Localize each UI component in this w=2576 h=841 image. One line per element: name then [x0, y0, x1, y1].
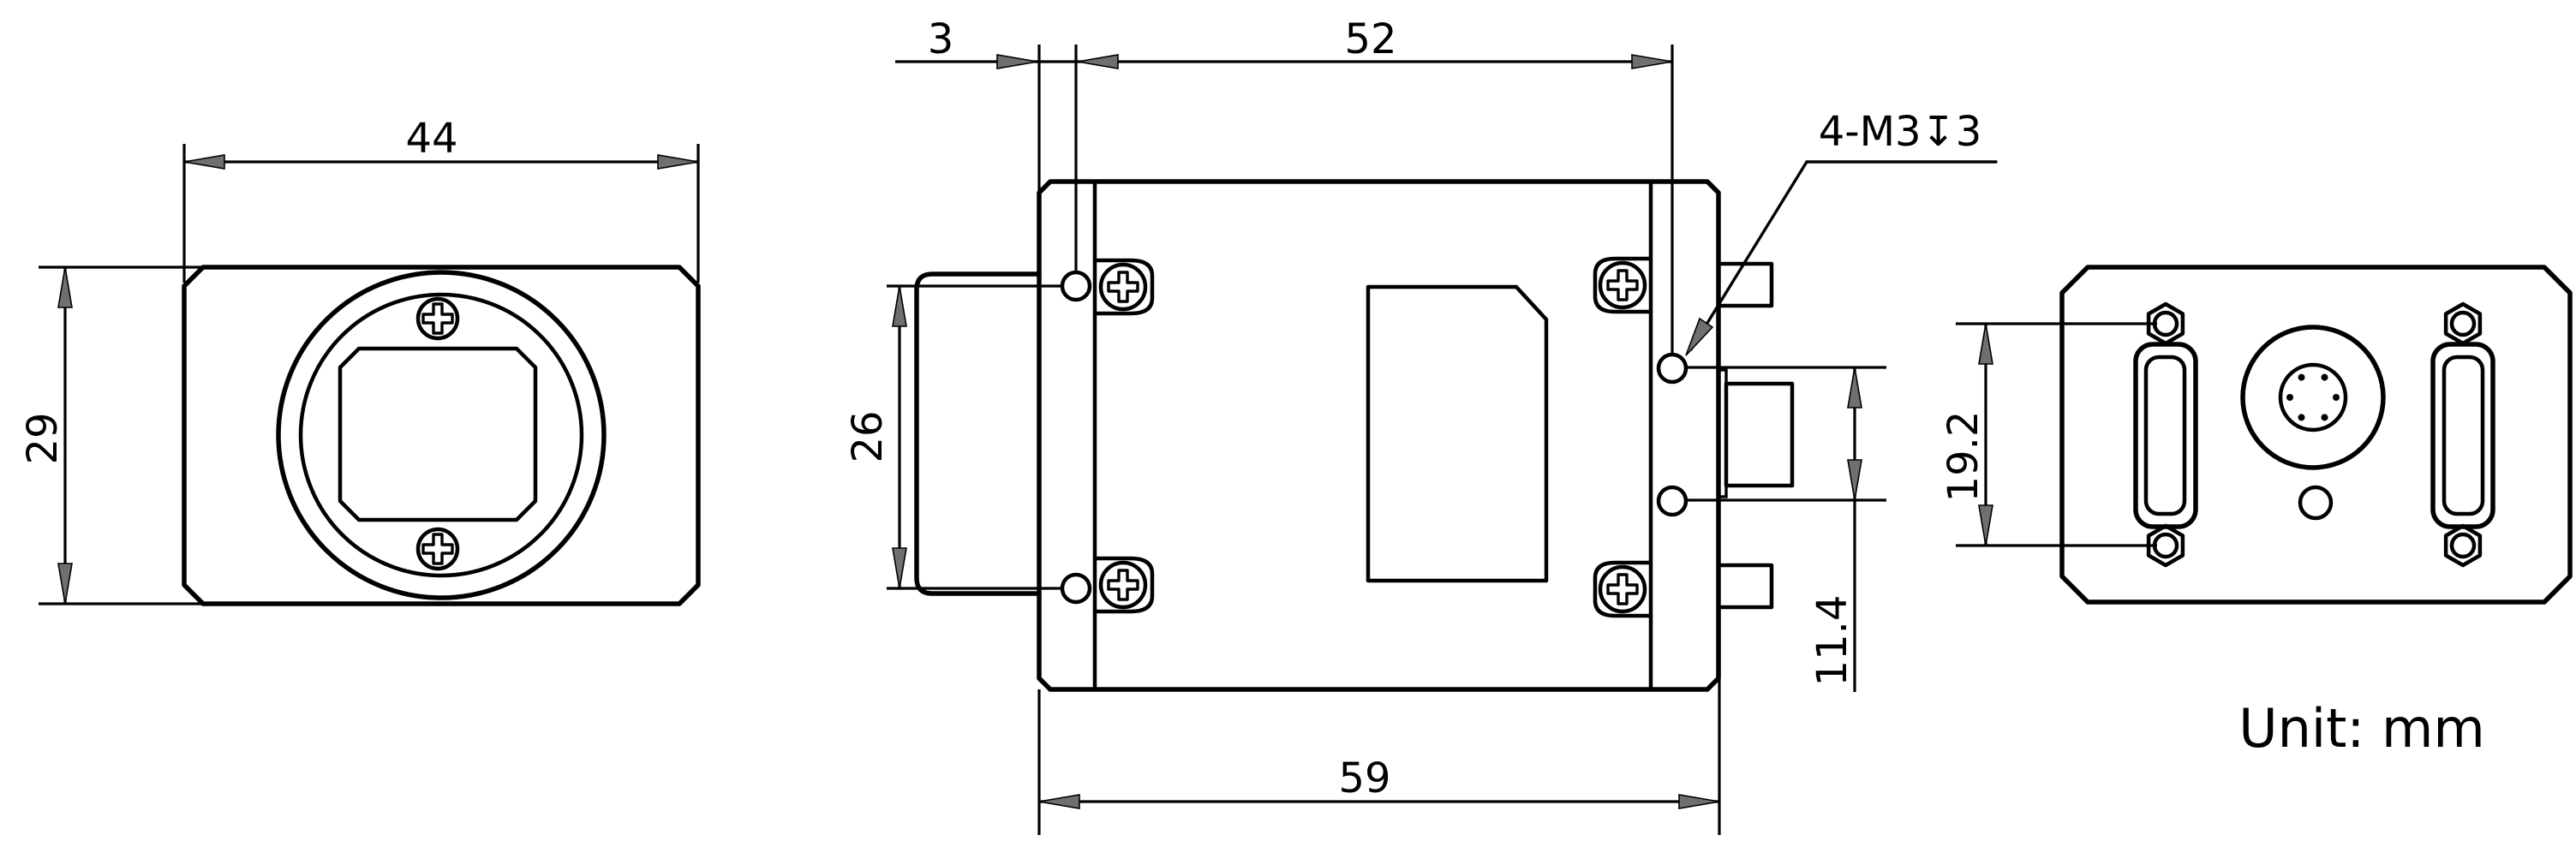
sensor-window: [340, 349, 535, 520]
callout-text-4-m3: 4-M3↧3: [1819, 108, 1982, 156]
lens-barrel: [917, 274, 1039, 593]
top-screw-rear-bottom-icon: [1595, 563, 1651, 616]
dim-text-front-height: 29: [19, 412, 67, 464]
top-label-recess: [1368, 287, 1546, 581]
jackscrew-right-top-icon: [2446, 304, 2480, 343]
technical-drawing: 44 29: [0, 0, 2576, 841]
top-screw-front-bottom-icon: [1095, 558, 1152, 611]
dim-text-59: 59: [1338, 755, 1390, 802]
m3-hole-rear-top: [1659, 355, 1686, 382]
dim-text-52: 52: [1344, 15, 1396, 63]
circular-connector: [2243, 327, 2383, 468]
dsub-connector-left: [2136, 344, 2196, 527]
dim-top-26: 26: [844, 286, 1062, 588]
rear-tab-top: [1718, 264, 1772, 306]
jackscrew-right-bottom-icon: [2446, 526, 2480, 565]
dim-rear-19-2: 19.2: [1939, 324, 2157, 546]
top-view: 3 52 26 59 11.4: [844, 15, 1996, 835]
unit-note: Unit: mm: [2238, 697, 2485, 760]
m3-hole-front-bottom: [1062, 575, 1090, 602]
dsub-connector-right: [2433, 344, 2493, 527]
top-screw-front-top-icon: [1095, 260, 1152, 313]
m3-hole-rear-bottom: [1659, 487, 1686, 515]
status-led-hole: [2300, 487, 2331, 518]
m3-hole-front-top: [1062, 272, 1090, 300]
dim-text-front-width: 44: [405, 115, 457, 163]
dim-text-3: 3: [928, 15, 954, 63]
rear-view: 19.2: [1939, 267, 2570, 602]
front-view: 44 29: [19, 115, 698, 604]
dim-top-59: 59: [1039, 610, 1719, 835]
callout-4-m3: 4-M3↧3: [1686, 108, 1996, 355]
dim-front-height: 29: [19, 267, 203, 604]
drawing-canvas: 44 29: [0, 0, 2576, 841]
dim-text-26: 26: [844, 410, 892, 462]
rear-tab-bottom: [1718, 565, 1772, 607]
rear-connector-body: [1726, 384, 1792, 486]
dim-text-11-4: 11.4: [1808, 595, 1856, 687]
dim-front-width: 44: [184, 115, 698, 283]
top-screw-rear-top-icon: [1595, 259, 1651, 312]
dim-text-19-2: 19.2: [1939, 411, 1987, 503]
dim-top-3-and-52: 3 52: [895, 15, 1672, 355]
front-screw-bottom-icon: [418, 529, 457, 569]
front-screw-top-icon: [418, 299, 457, 338]
